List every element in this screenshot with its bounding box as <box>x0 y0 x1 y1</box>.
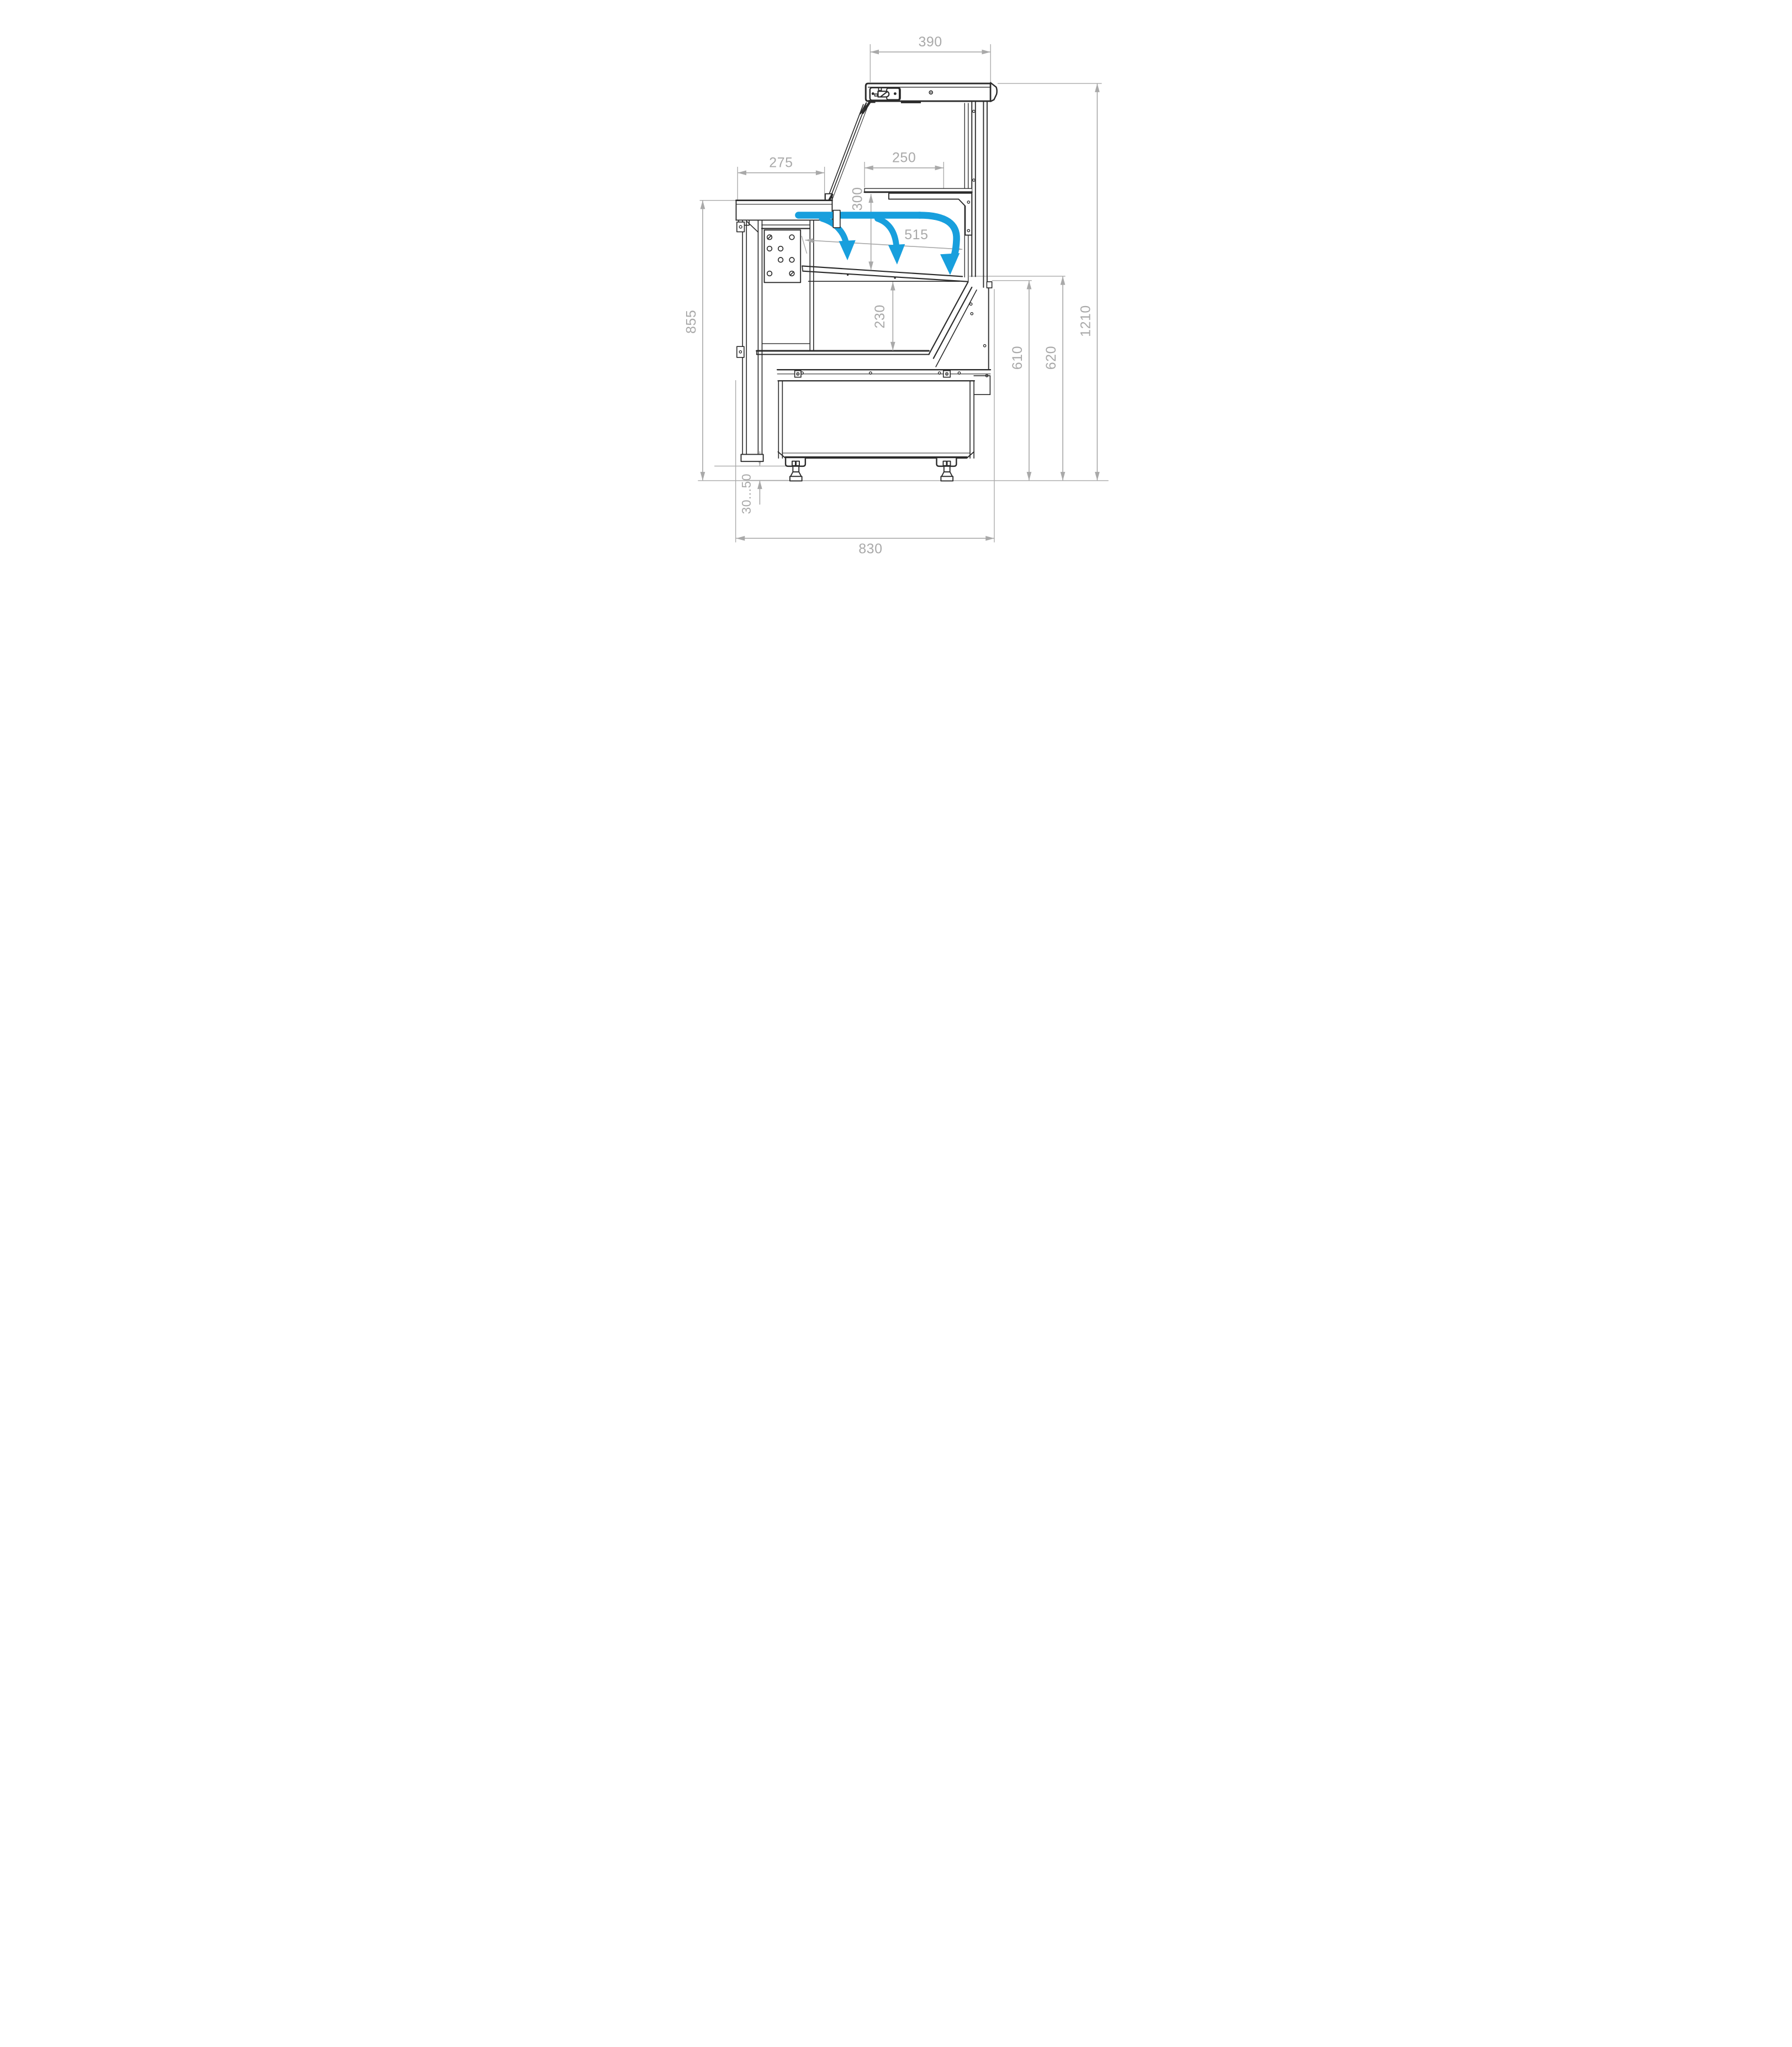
arrow-left <box>805 238 814 243</box>
arrow-left <box>865 165 873 170</box>
arrow-right <box>935 165 944 170</box>
screw-icon <box>872 92 874 95</box>
machine <box>736 83 997 481</box>
dim-shelf-to-deck: 300 <box>850 187 873 270</box>
front-edge-bracket <box>987 282 992 288</box>
dim-label-610: 610 <box>1010 346 1025 370</box>
storage-well <box>757 282 977 367</box>
arrow-bottom <box>868 261 873 270</box>
glass-front <box>825 102 870 202</box>
foot-pad <box>790 476 802 481</box>
airflow-arrow-icon <box>940 253 960 275</box>
airflow-arc-2 <box>877 219 896 247</box>
support-columns <box>737 220 763 461</box>
dim-worktop-height: 855 <box>684 201 736 481</box>
arrow-left <box>870 50 879 55</box>
arrow-top <box>890 282 895 291</box>
airflow <box>798 211 960 275</box>
dim-opening-depth: 515 <box>802 227 962 254</box>
arrow-bottom <box>1027 472 1032 481</box>
dim-front-edge-height: 620 <box>969 276 1065 481</box>
technical-drawing: 390 1210 855 275 <box>653 6 1139 561</box>
screw-icon <box>894 92 897 95</box>
dim-label-300: 300 <box>850 187 866 211</box>
dim-label-250: 250 <box>892 150 916 165</box>
column-foot-plate <box>741 454 763 461</box>
screw-icon <box>983 345 985 347</box>
nut-icon <box>796 461 799 466</box>
screw-icon <box>938 372 940 374</box>
display-deck <box>802 266 968 281</box>
nut-icon <box>943 461 946 466</box>
arrow-left <box>736 536 745 541</box>
dim-label-830: 830 <box>858 541 882 556</box>
dim-label-230: 230 <box>872 304 888 328</box>
dim-overall-height: 1210 <box>998 83 1102 481</box>
foot-pad <box>941 476 953 481</box>
dim-shelf-depth: 250 <box>865 150 944 191</box>
drawing-frame: 390 1210 855 275 <box>647 0 1145 566</box>
foot-cone <box>790 472 802 476</box>
dim-label-620: 620 <box>1043 346 1059 370</box>
arrow-top <box>700 201 705 209</box>
dim-label-390: 390 <box>918 34 942 50</box>
screw-icon <box>894 277 895 279</box>
foot-stem <box>944 466 950 472</box>
adjustable-foot-left <box>786 458 805 481</box>
arrow-bottom <box>700 472 705 481</box>
rear-panel <box>964 102 992 394</box>
screw-icon <box>971 313 973 315</box>
screw-icon <box>973 110 975 112</box>
foot-stem <box>793 466 799 472</box>
airflow-arrow-icon <box>839 240 855 260</box>
mounting-plate <box>737 222 745 232</box>
foot-cone <box>941 472 952 476</box>
dim-label-515: 515 <box>904 227 928 243</box>
perforated-panel <box>765 230 801 282</box>
glass-pane <box>827 104 863 199</box>
dim-label-1210: 1210 <box>1078 305 1094 337</box>
mounting-plate <box>737 346 744 357</box>
dim-label-855: 855 <box>684 310 699 334</box>
nut-icon <box>792 461 795 466</box>
screw-icon <box>958 372 960 374</box>
arrow-left <box>737 170 746 175</box>
canopy <box>866 83 997 103</box>
screw-icon <box>847 274 848 276</box>
arrow-up <box>757 480 762 489</box>
dim-label-30-50: 30...50 <box>739 473 753 514</box>
duct-clip <box>833 211 840 228</box>
dim-label-275: 275 <box>769 155 793 170</box>
dimensions-outer: 390 1210 855 275 <box>684 34 1109 557</box>
canopy-end-cap <box>990 83 997 102</box>
arrow-top <box>868 194 873 203</box>
arrow-right <box>816 170 825 175</box>
arrow-top <box>1095 83 1100 92</box>
dim-well-depth: 230 <box>872 282 895 351</box>
nut-icon <box>947 461 951 466</box>
arrow-top <box>1027 281 1032 290</box>
arrow-right <box>982 50 990 55</box>
arrow-bottom <box>1061 472 1066 481</box>
airflow-arrow-icon <box>888 244 905 265</box>
screw-icon <box>973 179 975 181</box>
arrow-bottom <box>890 342 895 351</box>
adjustable-foot-right <box>937 458 957 481</box>
arrow-top <box>1061 276 1066 285</box>
arrow-bottom <box>1095 472 1100 481</box>
base-cabinet <box>777 370 990 458</box>
glass-pane <box>829 105 866 200</box>
screw-icon <box>869 372 872 374</box>
deck-surface <box>802 266 962 276</box>
arrow-right <box>985 536 994 541</box>
dim-worktop-depth: 275 <box>737 155 824 199</box>
dim-deck-edge-height: 610 <box>992 281 1032 481</box>
dim-top-depth: 390 <box>870 34 990 82</box>
